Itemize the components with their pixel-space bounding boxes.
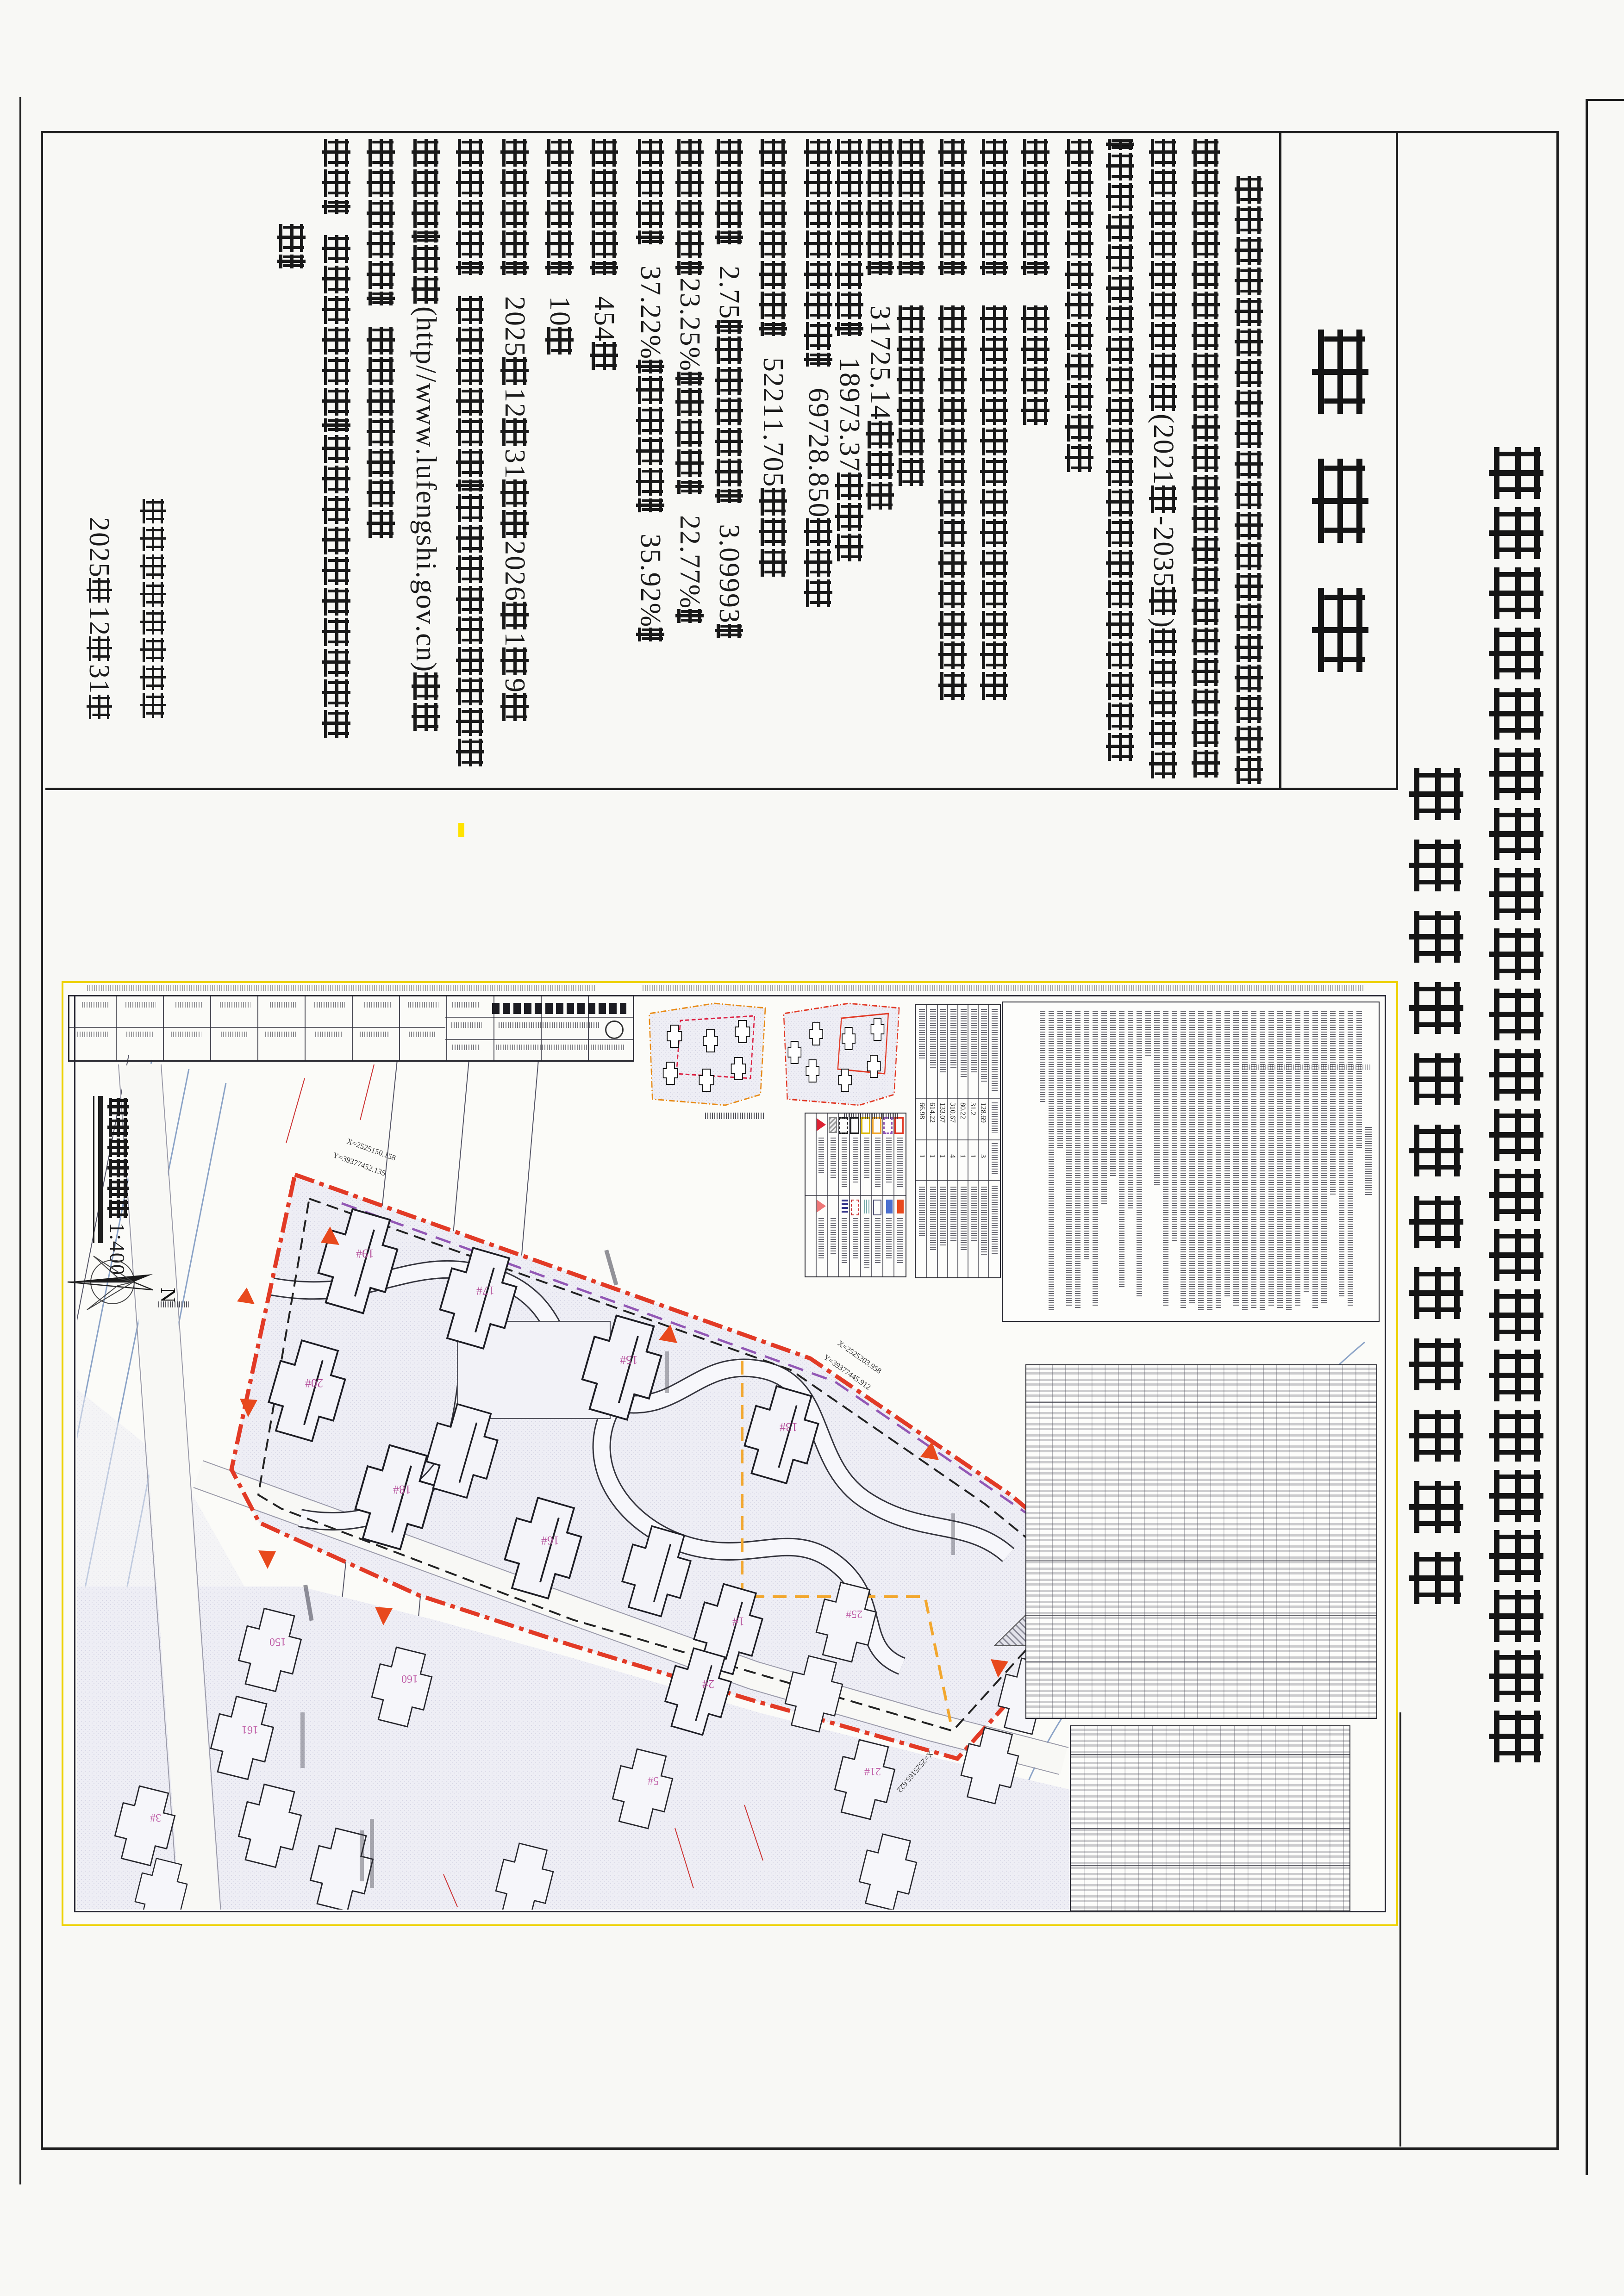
svg-text:15#: 15#: [620, 1353, 638, 1367]
svg-text:21#: 21#: [864, 1765, 881, 1777]
svg-text:13#: 13#: [780, 1420, 798, 1434]
svg-text:16#: 16#: [541, 1534, 559, 1547]
svg-text:25#: 25#: [846, 1608, 862, 1620]
svg-text:5#: 5#: [648, 1774, 659, 1786]
svg-text:20#: 20#: [305, 1376, 323, 1390]
svg-text:18#: 18#: [393, 1483, 411, 1496]
svg-text:161: 161: [242, 1724, 258, 1736]
svg-text:N: N: [156, 1288, 180, 1303]
svg-text:2#: 2#: [702, 1677, 714, 1691]
svg-text:17#: 17#: [476, 1284, 494, 1297]
svg-text:1#: 1#: [732, 1615, 744, 1628]
svg-text:19#: 19#: [356, 1247, 374, 1260]
svg-text:3#: 3#: [150, 1811, 161, 1823]
svg-text:150: 150: [269, 1636, 286, 1648]
svg-text:160: 160: [401, 1673, 418, 1685]
